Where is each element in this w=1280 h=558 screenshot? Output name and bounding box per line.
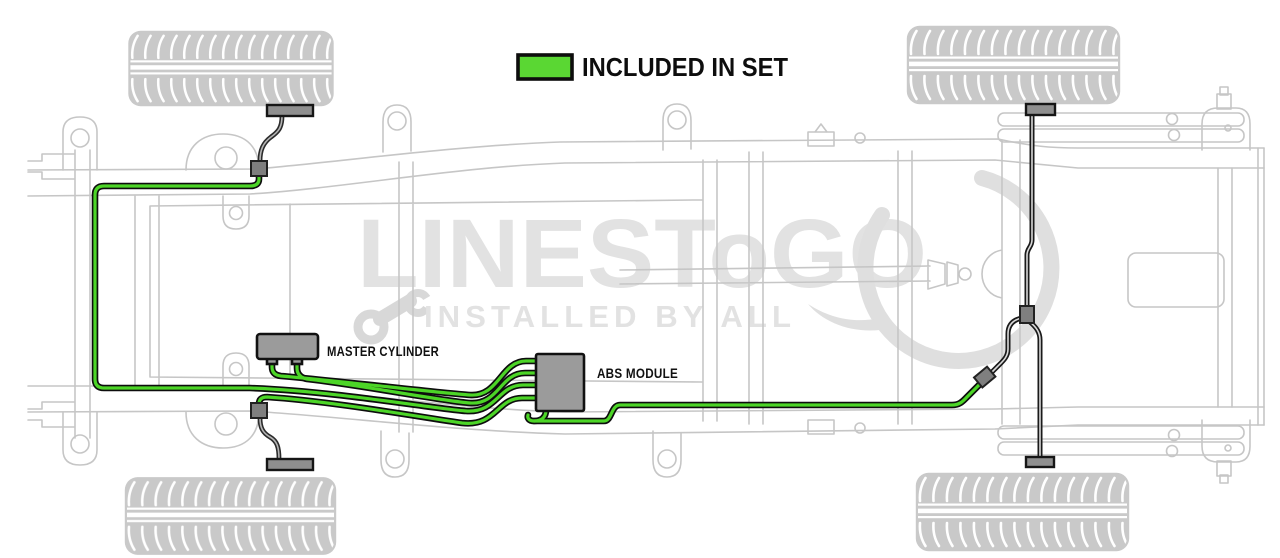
legend: INCLUDED IN SET xyxy=(518,52,788,82)
caliper-plate-front-left xyxy=(267,105,313,116)
brand-watermark: LINESToGO xyxy=(357,199,927,308)
master-cylinder-box xyxy=(257,334,318,359)
tire-front-right xyxy=(125,477,336,555)
caliper-plate-front-right xyxy=(267,459,313,470)
legend-swatch-included xyxy=(518,55,572,79)
leaf-spring-bar xyxy=(998,442,1244,455)
leaf-spring-bar xyxy=(998,129,1244,142)
caliper-plate-rear-left xyxy=(1026,104,1055,115)
rear-crossbox xyxy=(1128,253,1224,307)
spring-hanger-bolt xyxy=(1217,461,1231,476)
legend-label: INCLUDED IN SET xyxy=(582,52,788,82)
abs-module-box xyxy=(536,354,584,411)
connector-front-upper xyxy=(251,161,267,176)
tire-rear-right xyxy=(916,473,1129,551)
tire-front-left xyxy=(128,31,333,106)
brake-line-diagram: LINESToGO INSTALLED BY ALL xyxy=(0,0,1280,558)
spring-hanger-bolt xyxy=(1217,94,1231,109)
tagline-watermark: INSTALLED BY ALL xyxy=(424,299,796,334)
caliper-plate-rear-right xyxy=(1026,457,1054,467)
junction-rear-tee xyxy=(1020,306,1034,323)
tire-rear-left xyxy=(907,26,1120,104)
abs-module-label: ABS MODULE xyxy=(597,365,678,381)
connector-front-lower xyxy=(251,403,267,418)
leaf-spring-bar xyxy=(998,426,1244,439)
brake-lines-excluded xyxy=(989,114,1040,458)
master-cylinder-label: MASTER CYLINDER xyxy=(327,343,439,359)
